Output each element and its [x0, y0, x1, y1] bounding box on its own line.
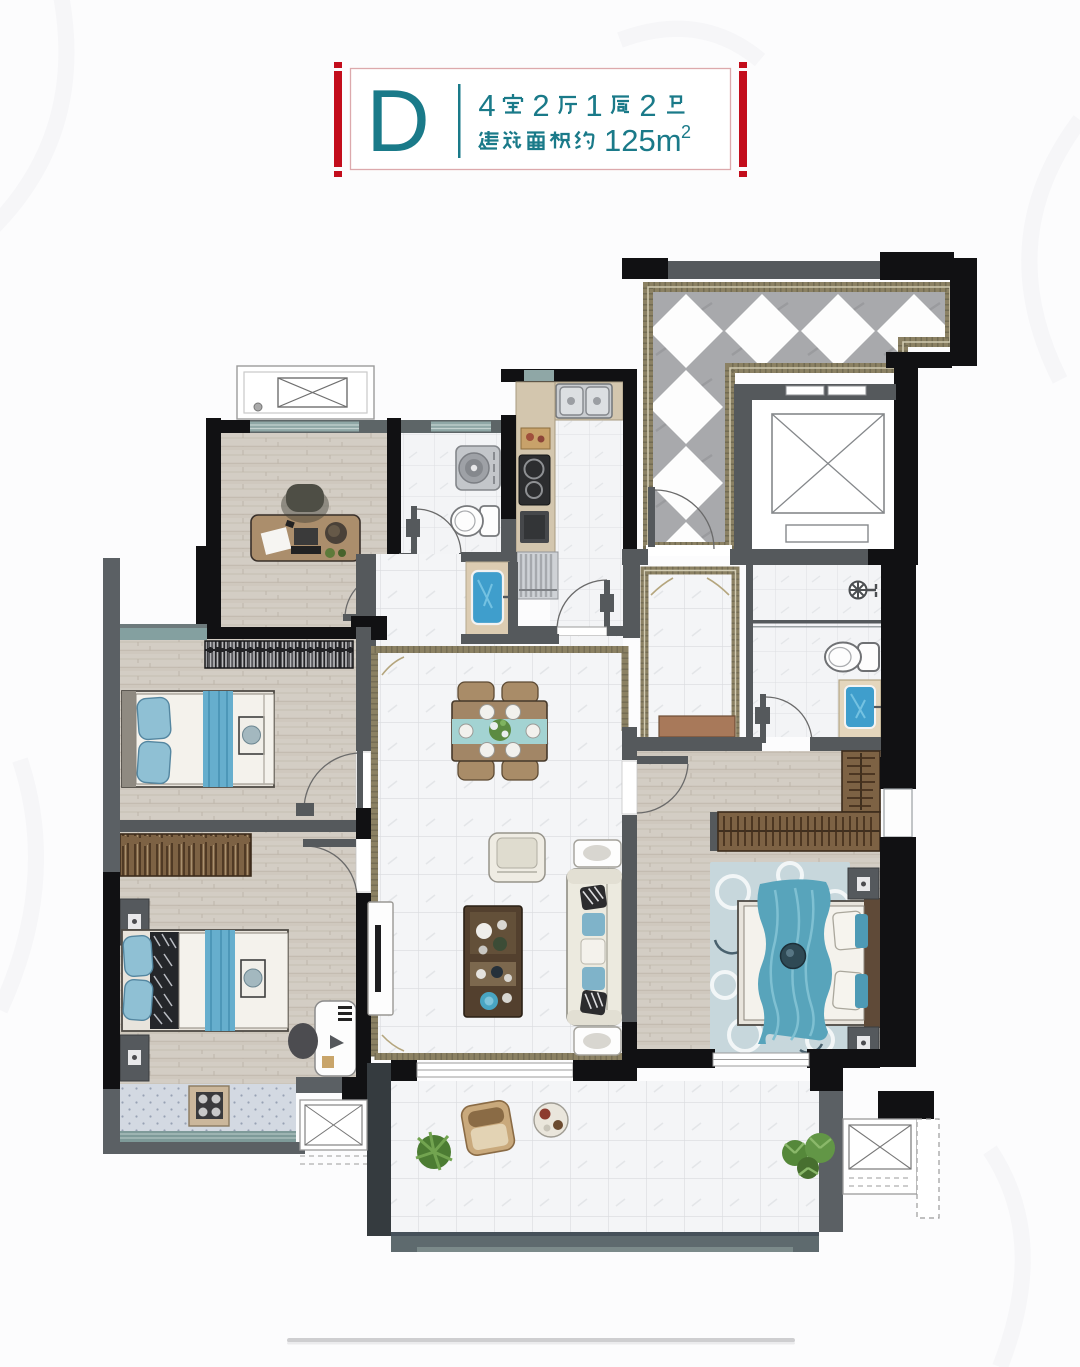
svg-text:2: 2 — [532, 88, 549, 123]
svg-text:1: 1 — [585, 88, 602, 123]
svg-text:4: 4 — [478, 88, 495, 123]
svg-text:2: 2 — [639, 88, 656, 123]
svg-text:2: 2 — [681, 122, 691, 142]
svg-text:D: D — [366, 71, 430, 170]
svg-text:125m: 125m — [604, 123, 682, 158]
